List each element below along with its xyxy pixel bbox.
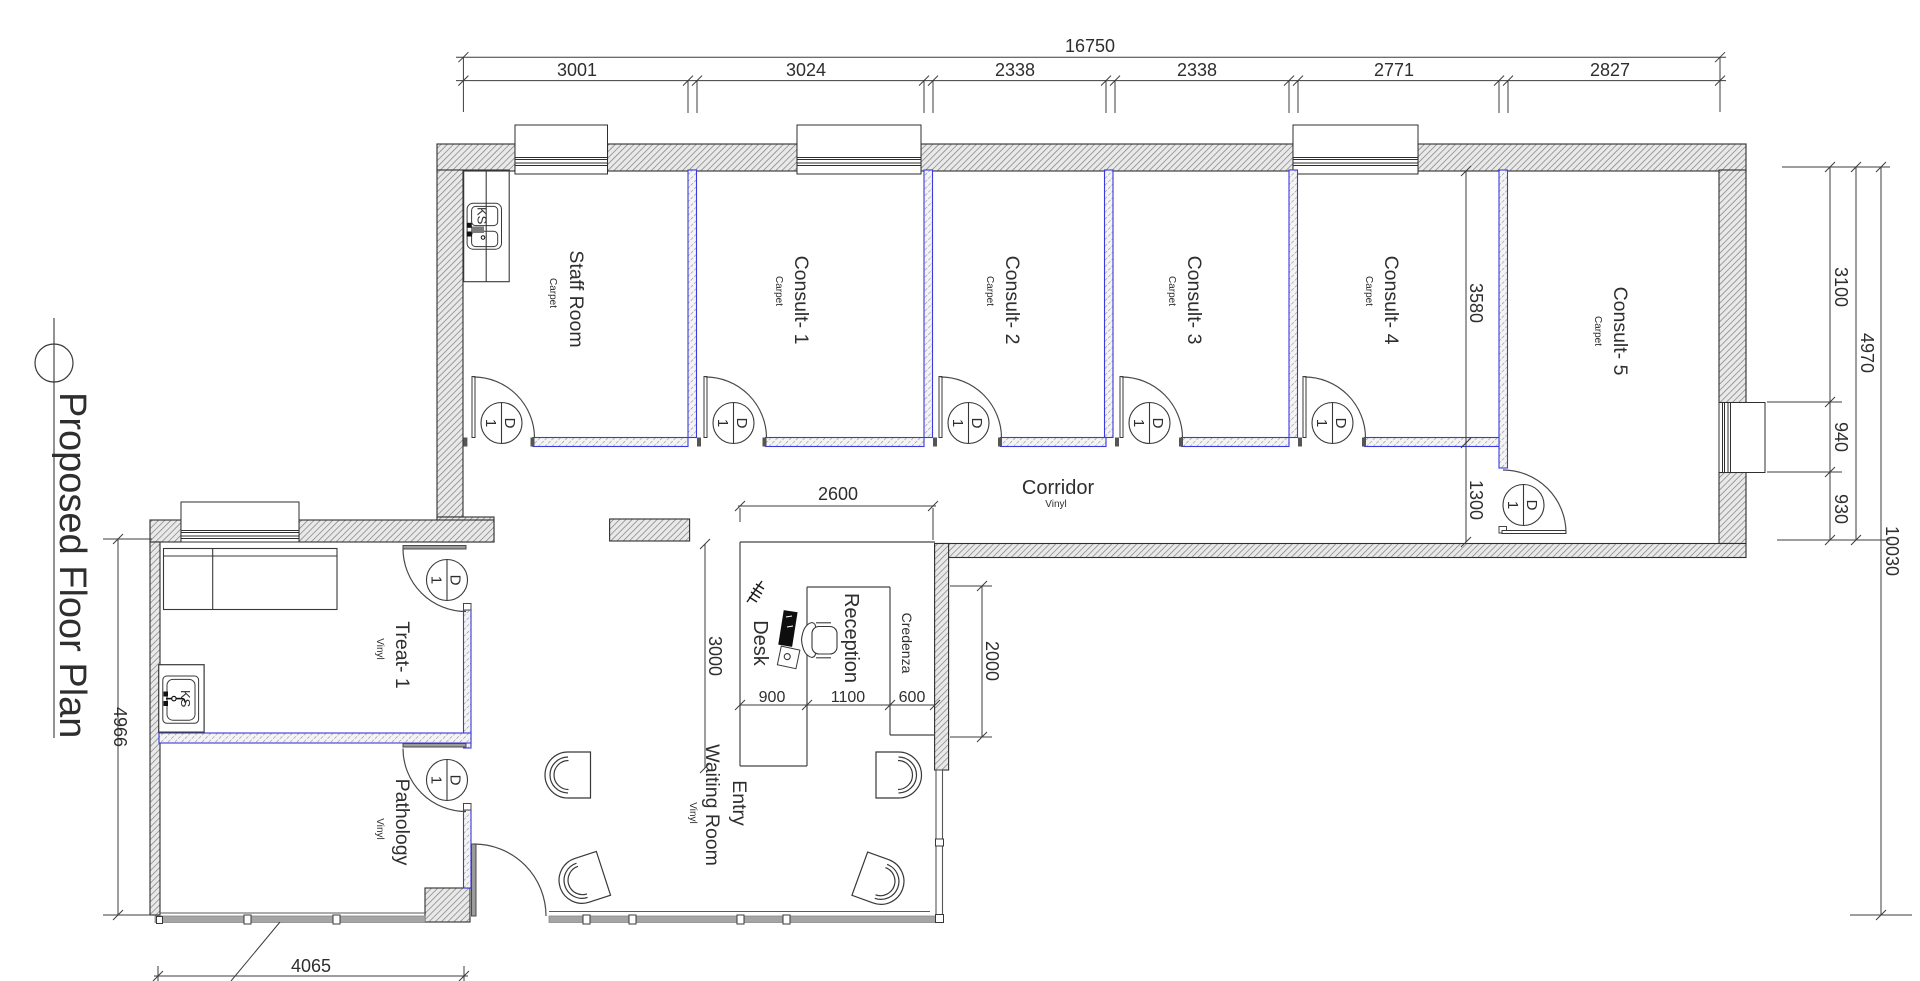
svg-text:Vinyl: Vinyl — [1045, 499, 1067, 510]
svg-text:Treat- 1: Treat- 1 — [391, 621, 413, 689]
svg-text:Credenza: Credenza — [899, 613, 915, 674]
svg-text:3580: 3580 — [1466, 283, 1486, 323]
svg-text:930: 930 — [1831, 494, 1851, 524]
svg-text:16750: 16750 — [1065, 36, 1115, 56]
svg-text:Carpet: Carpet — [1592, 316, 1603, 346]
svg-text:4966: 4966 — [110, 707, 130, 747]
svg-text:1: 1 — [482, 419, 499, 427]
svg-text:4970: 4970 — [1857, 333, 1877, 373]
svg-text:D: D — [447, 775, 464, 786]
svg-text:3024: 3024 — [786, 60, 826, 80]
svg-text:Vinyl: Vinyl — [687, 802, 698, 824]
svg-text:3100: 3100 — [1831, 267, 1851, 307]
svg-text:D: D — [501, 418, 518, 429]
svg-text:Consult- 5: Consult- 5 — [1609, 287, 1631, 376]
svg-text:1: 1 — [428, 776, 445, 784]
svg-text:3001: 3001 — [557, 60, 597, 80]
svg-text:Reception: Reception — [840, 593, 862, 683]
svg-text:Consult- 2: Consult- 2 — [1001, 256, 1023, 345]
svg-text:D: D — [1523, 500, 1540, 511]
svg-text:Waiting Room: Waiting Room — [701, 744, 723, 866]
svg-text:Consult- 4: Consult- 4 — [1380, 256, 1402, 345]
svg-text:1: 1 — [1130, 419, 1147, 427]
svg-text:Consult- 3: Consult- 3 — [1183, 256, 1205, 345]
svg-text:Carpet: Carpet — [984, 276, 995, 306]
svg-text:Pathology: Pathology — [391, 779, 413, 866]
svg-text:Proposed Floor Plan: Proposed Floor Plan — [51, 392, 93, 738]
svg-text:900: 900 — [759, 689, 786, 706]
svg-text:1: 1 — [428, 576, 445, 584]
svg-text:KS: KS — [178, 690, 193, 708]
svg-text:2338: 2338 — [1177, 60, 1217, 80]
svg-text:Vinyl: Vinyl — [374, 818, 385, 840]
svg-text:940: 940 — [1831, 422, 1851, 452]
svg-text:Desk: Desk — [749, 620, 771, 667]
svg-text:3000: 3000 — [705, 636, 725, 676]
svg-text:Staff Room: Staff Room — [565, 250, 587, 347]
svg-text:D: D — [1332, 418, 1349, 429]
svg-text:2600: 2600 — [818, 484, 858, 504]
svg-text:D: D — [733, 418, 750, 429]
svg-text:Carpet: Carpet — [1166, 276, 1177, 306]
svg-text:D: D — [447, 575, 464, 586]
svg-text:2771: 2771 — [1374, 60, 1414, 80]
svg-text:Corridor: Corridor — [1022, 477, 1095, 499]
svg-text:1300: 1300 — [1466, 480, 1486, 520]
svg-text:4065: 4065 — [291, 956, 331, 976]
svg-text:1100: 1100 — [831, 689, 866, 706]
svg-text:1: 1 — [1313, 419, 1330, 427]
svg-text:D: D — [968, 418, 985, 429]
svg-text:Consult- 1: Consult- 1 — [790, 256, 812, 345]
svg-text:10030: 10030 — [1882, 526, 1902, 576]
svg-text:2000: 2000 — [982, 641, 1002, 681]
svg-text:2338: 2338 — [995, 60, 1035, 80]
svg-text:KS: KS — [475, 207, 490, 225]
svg-text:Carpet: Carpet — [773, 276, 784, 306]
svg-text:Vinyl: Vinyl — [374, 638, 385, 660]
svg-text:D: D — [1149, 418, 1166, 429]
svg-text:Carpet: Carpet — [1363, 276, 1374, 306]
svg-text:Carpet: Carpet — [547, 278, 558, 308]
svg-text:Entry: Entry — [728, 780, 750, 826]
svg-text:1: 1 — [1504, 501, 1521, 509]
svg-text:600: 600 — [899, 689, 926, 706]
svg-text:1: 1 — [949, 419, 966, 427]
svg-text:2827: 2827 — [1590, 60, 1630, 80]
svg-text:1: 1 — [714, 419, 731, 427]
